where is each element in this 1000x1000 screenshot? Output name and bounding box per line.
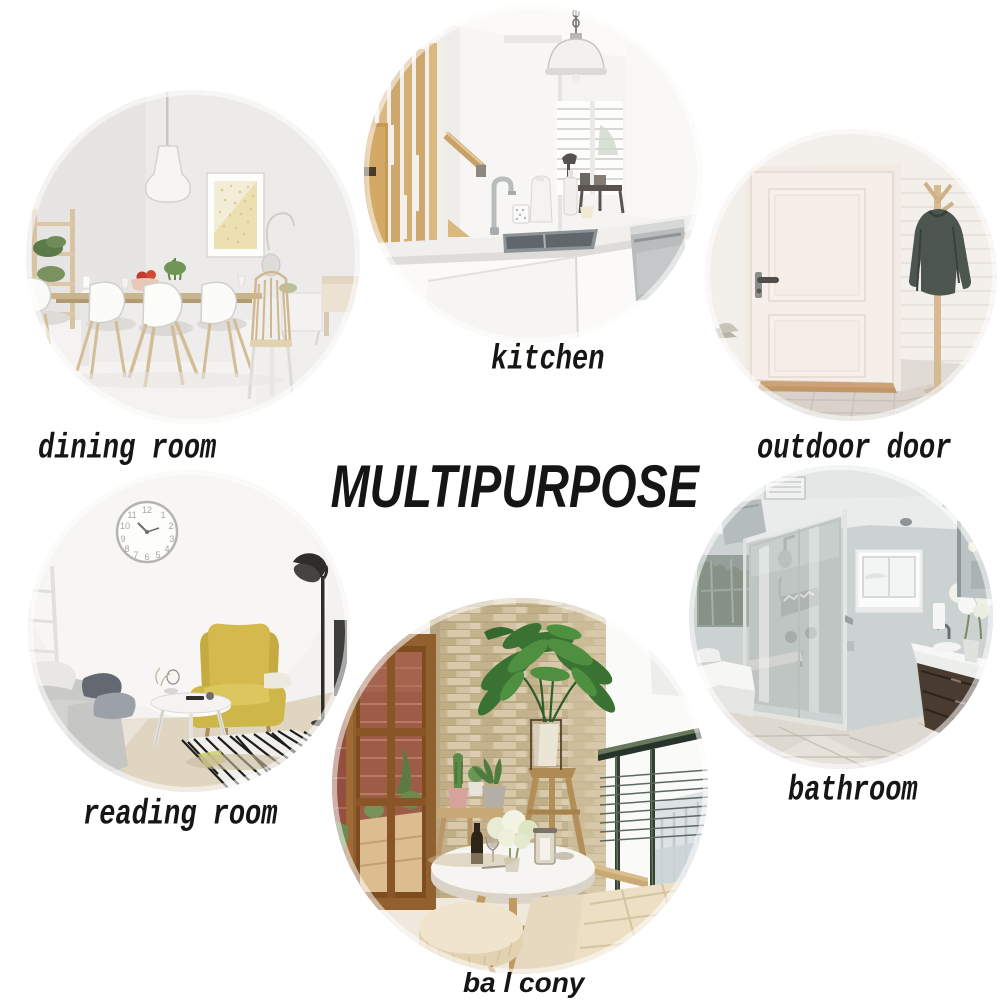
svg-text:3: 3 [169,534,174,544]
svg-text:10: 10 [120,521,130,531]
svg-text:2: 2 [168,521,173,531]
svg-text:5: 5 [155,550,160,560]
svg-text:7: 7 [133,550,138,560]
svg-text:9: 9 [120,534,125,544]
svg-text:4: 4 [164,544,169,554]
svg-text:8: 8 [124,544,129,554]
svg-text:6: 6 [144,552,149,562]
